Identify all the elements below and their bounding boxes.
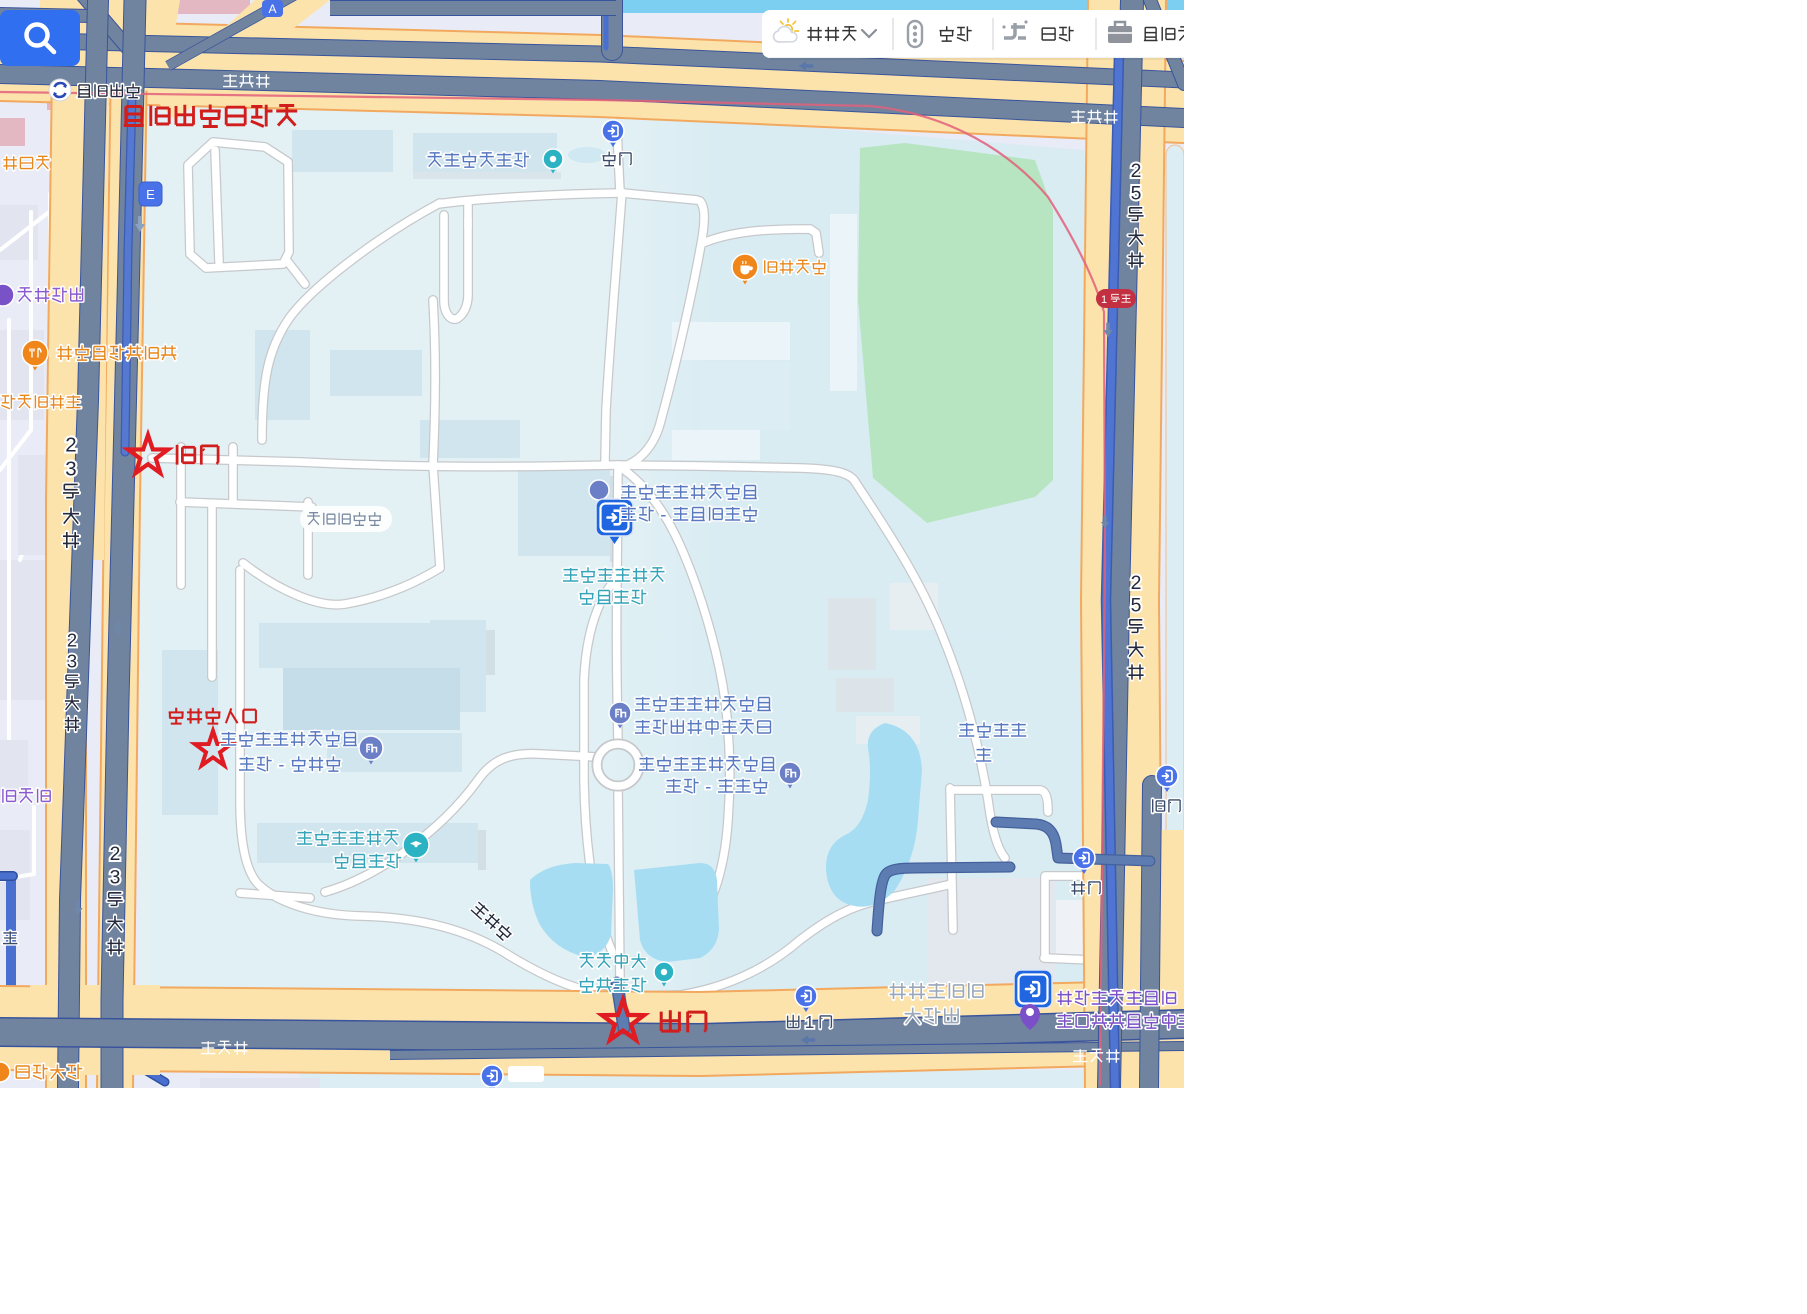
svg-text:E: E <box>146 187 155 202</box>
svg-text:2: 2 <box>1131 160 1142 182</box>
svg-text:2: 2 <box>65 433 76 456</box>
svg-text:2: 2 <box>1131 572 1142 594</box>
svg-text:5: 5 <box>1131 183 1142 205</box>
svg-text:2: 2 <box>67 630 77 651</box>
svg-text:1: 1 <box>1101 294 1107 306</box>
svg-text:-: - <box>660 504 666 525</box>
svg-text:3: 3 <box>65 457 76 480</box>
svg-text:5: 5 <box>1131 595 1142 617</box>
svg-text:1: 1 <box>805 1012 815 1032</box>
svg-text:3: 3 <box>110 867 121 889</box>
svg-text:2: 2 <box>110 843 121 865</box>
svg-text:-: - <box>278 754 284 775</box>
svg-text:3: 3 <box>67 651 77 672</box>
svg-text:-: - <box>705 776 711 797</box>
svg-text:A: A <box>268 2 276 16</box>
